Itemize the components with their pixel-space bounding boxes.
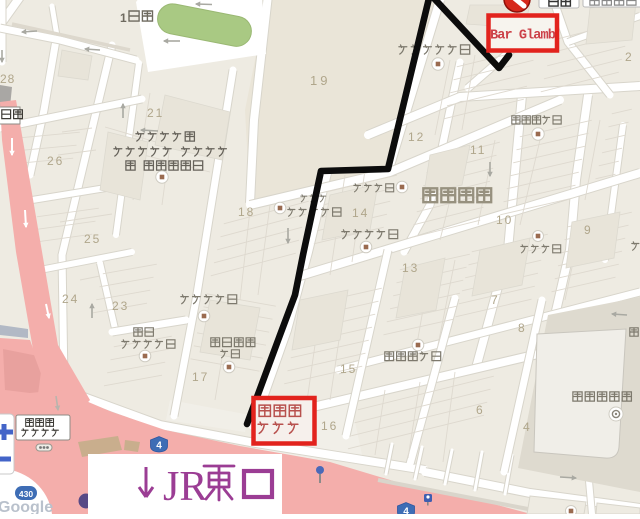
- svg-text:28: 28: [0, 72, 15, 86]
- svg-text:24: 24: [62, 292, 79, 306]
- svg-text:4: 4: [523, 420, 530, 434]
- svg-text:11: 11: [470, 143, 486, 157]
- svg-text:17: 17: [192, 370, 209, 384]
- svg-text:14: 14: [352, 206, 369, 220]
- svg-text:JR: JR: [163, 464, 207, 510]
- svg-text:13: 13: [402, 261, 419, 275]
- svg-text:1: 1: [120, 11, 127, 25]
- svg-text:7: 7: [491, 293, 498, 307]
- svg-text:23: 23: [112, 299, 129, 313]
- svg-text:9: 9: [584, 223, 591, 237]
- svg-text:4: 4: [156, 441, 162, 452]
- svg-text:15: 15: [340, 362, 357, 376]
- svg-text:25: 25: [84, 232, 101, 246]
- svg-text:430: 430: [19, 489, 33, 499]
- svg-text:16: 16: [321, 419, 338, 433]
- svg-text:21: 21: [147, 106, 164, 120]
- svg-text:12: 12: [408, 130, 425, 144]
- svg-text:6: 6: [476, 403, 483, 417]
- svg-text:Bar Glamb: Bar Glamb: [490, 29, 556, 44]
- svg-text:8: 8: [518, 321, 525, 335]
- svg-text:19: 19: [310, 73, 330, 88]
- svg-text:4: 4: [403, 507, 409, 515]
- svg-text:18: 18: [238, 205, 255, 219]
- svg-text:2: 2: [625, 50, 632, 64]
- svg-text:10: 10: [496, 213, 513, 227]
- svg-text:Google: Google: [0, 499, 53, 514]
- svg-text:26: 26: [47, 154, 64, 168]
